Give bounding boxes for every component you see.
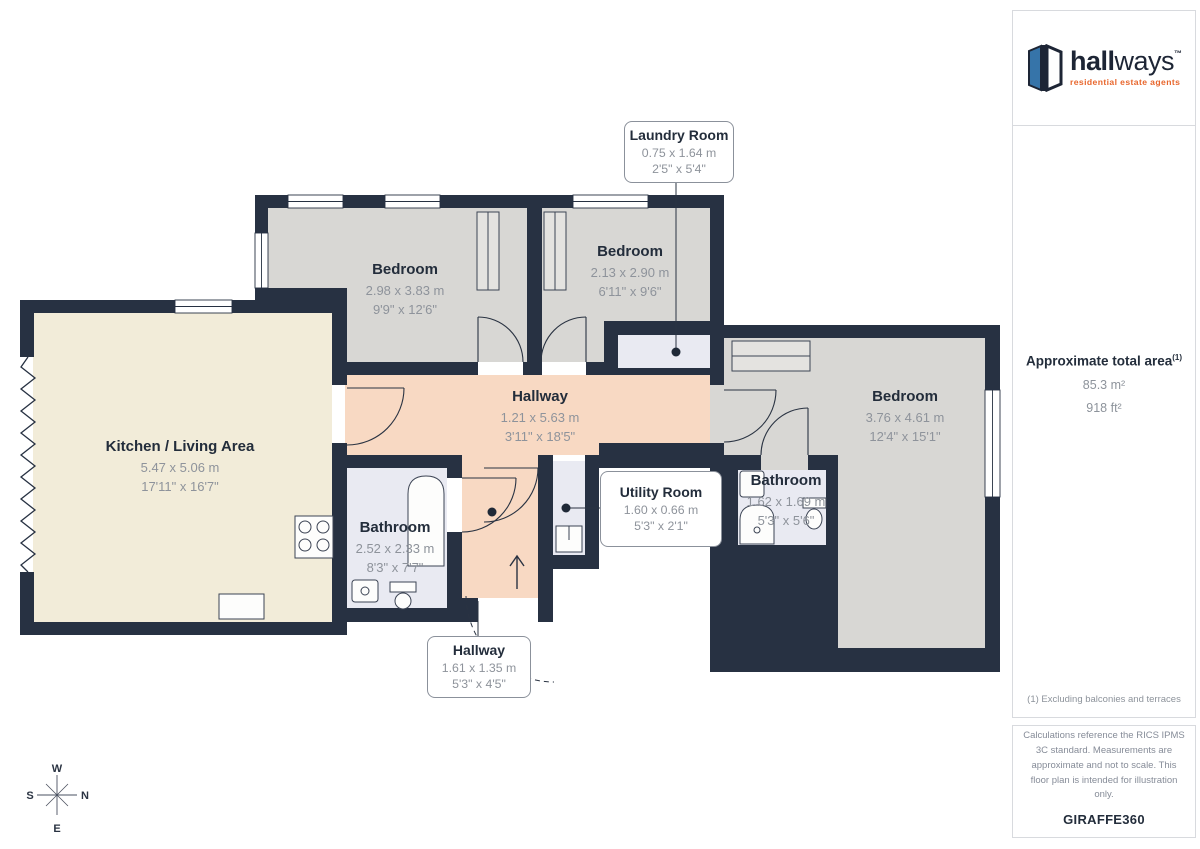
provider-name: GIRAFFE360 — [1063, 812, 1145, 827]
svg-text:W: W — [52, 763, 63, 775]
toilet-icon — [803, 498, 826, 508]
total-area-block: Approximate total area(1) 85.3 m² 918 ft… — [1013, 353, 1195, 415]
sink-icon — [740, 471, 764, 497]
toilet-icon — [390, 582, 416, 592]
sink-icon — [352, 580, 378, 602]
callout-laundry-room: Laundry Room 0.75 x 1.64 m 2'5" x 5'4" — [624, 121, 734, 183]
area-footnote: (1) Excluding balconies and terraces — [1013, 694, 1195, 705]
bench-icon — [219, 594, 264, 619]
bathtub-icon — [408, 476, 444, 566]
floors-layer — [33, 208, 985, 648]
zigzag-opening — [21, 357, 35, 572]
svg-text:E: E — [53, 823, 60, 835]
brand-name: hallways™ — [1070, 49, 1182, 73]
disclaimer-text: Calculations reference the RICS IPMS 3C … — [1023, 729, 1185, 803]
total-area-m2: 85.3 m² — [1013, 378, 1195, 392]
callout-utility-room: Utility Room 1.60 x 0.66 m 5'3" x 2'1" — [600, 471, 722, 547]
compass-icon: W E S N — [26, 763, 89, 835]
sidebar-panel: hallways™ residential estate agents Appr… — [1012, 10, 1196, 718]
door-logo-icon — [1026, 44, 1064, 92]
disclaimer-panel: Calculations reference the RICS IPMS 3C … — [1012, 725, 1196, 838]
total-area-ft2: 918 ft² — [1013, 401, 1195, 415]
svg-text:S: S — [26, 790, 33, 802]
svg-text:N: N — [81, 790, 89, 802]
shower-icon — [740, 505, 774, 544]
callout-hallway-2: Hallway 1.61 x 1.35 m 5'3" x 4'5" — [427, 636, 531, 698]
total-area-label: Approximate total area(1) — [1013, 353, 1195, 369]
floorplan-page: W E S N Kitchen / Living Area 5.47 x 5.0… — [0, 0, 1200, 849]
brand-logo: hallways™ residential estate agents — [1013, 11, 1195, 126]
brand-tagline: residential estate agents — [1070, 77, 1182, 87]
